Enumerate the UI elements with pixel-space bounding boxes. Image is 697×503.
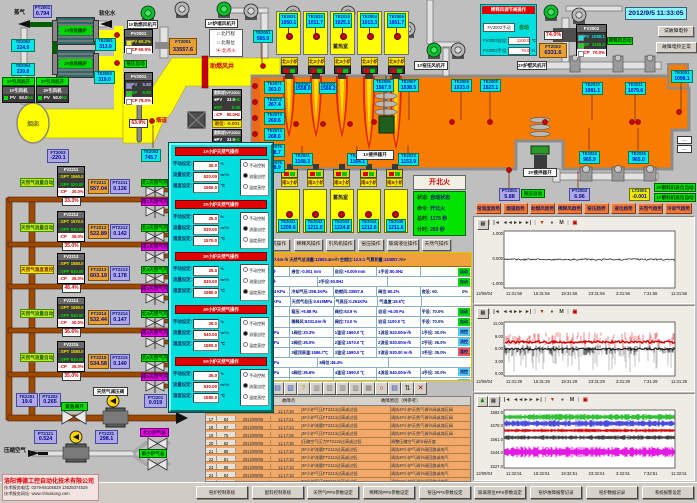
svg-text:烟囱: 烟囱 bbox=[27, 120, 39, 128]
